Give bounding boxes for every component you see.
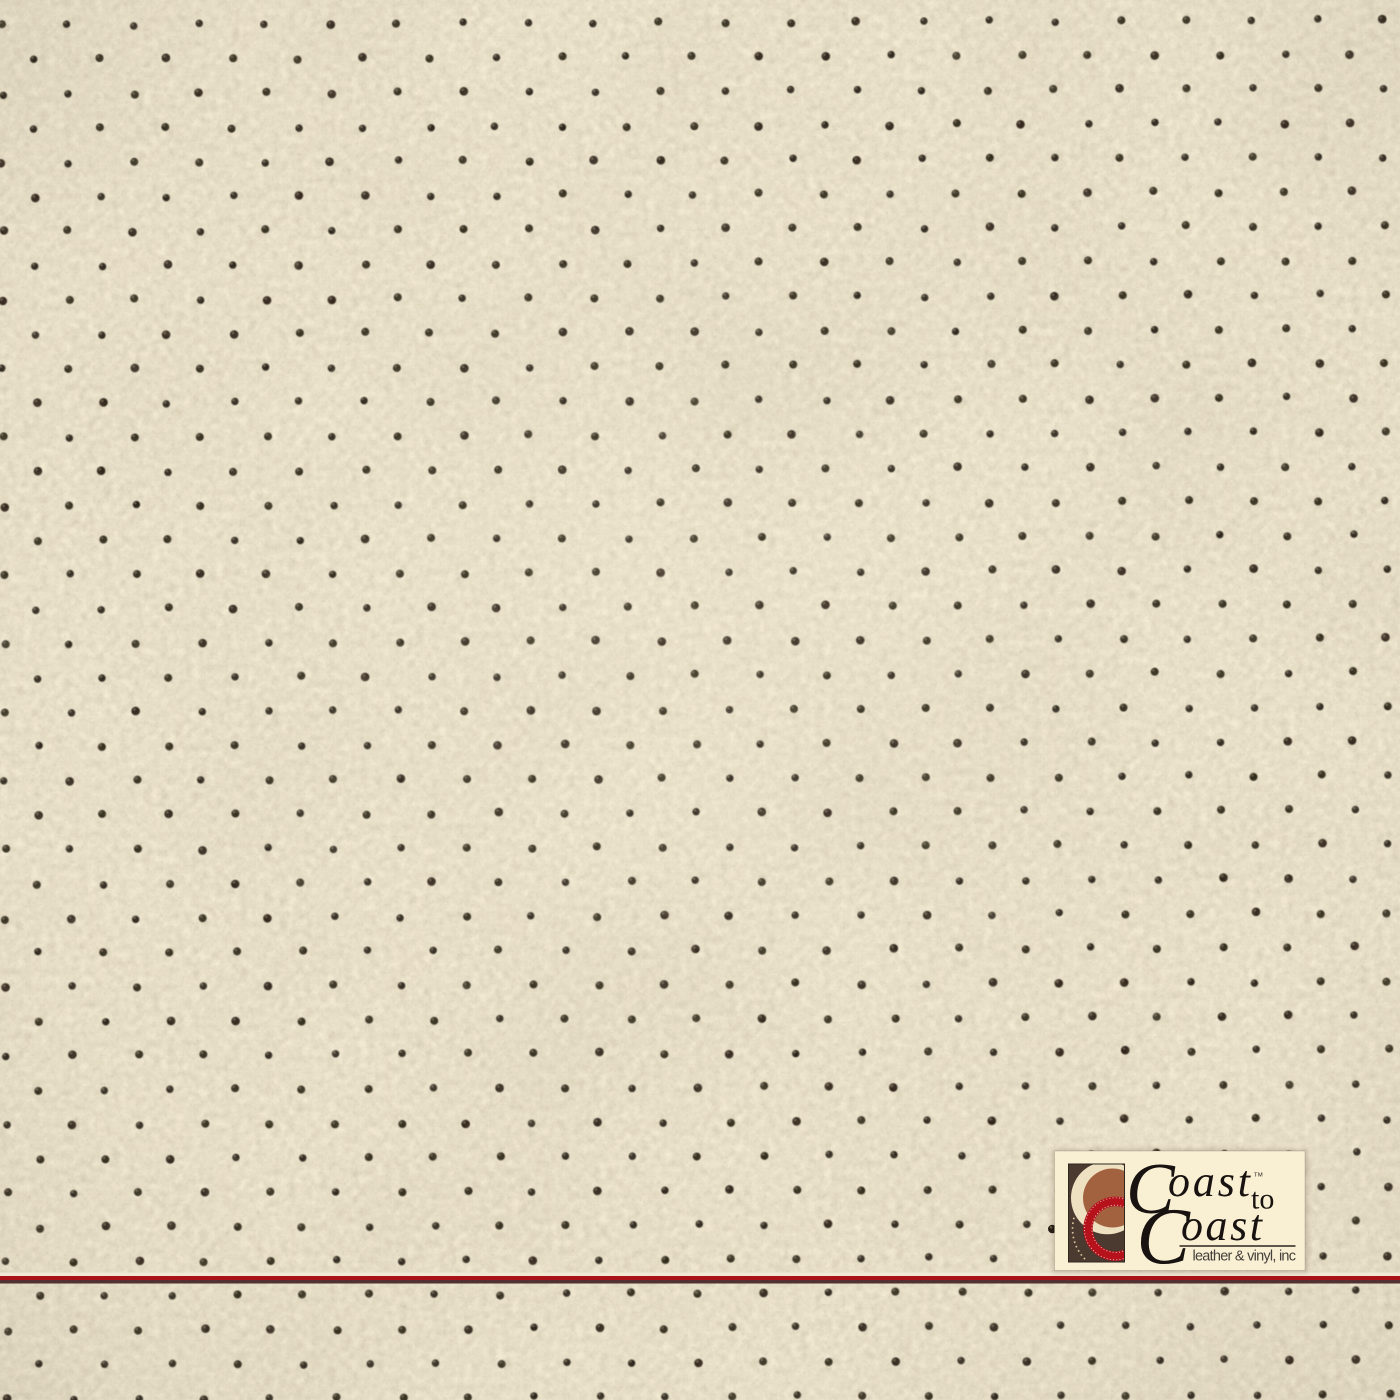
svg-text:oast: oast	[1181, 1201, 1264, 1250]
svg-text:leather & vinyl, inc: leather & vinyl, inc	[1193, 1249, 1297, 1265]
svg-text:TM: TM	[1254, 1173, 1263, 1179]
